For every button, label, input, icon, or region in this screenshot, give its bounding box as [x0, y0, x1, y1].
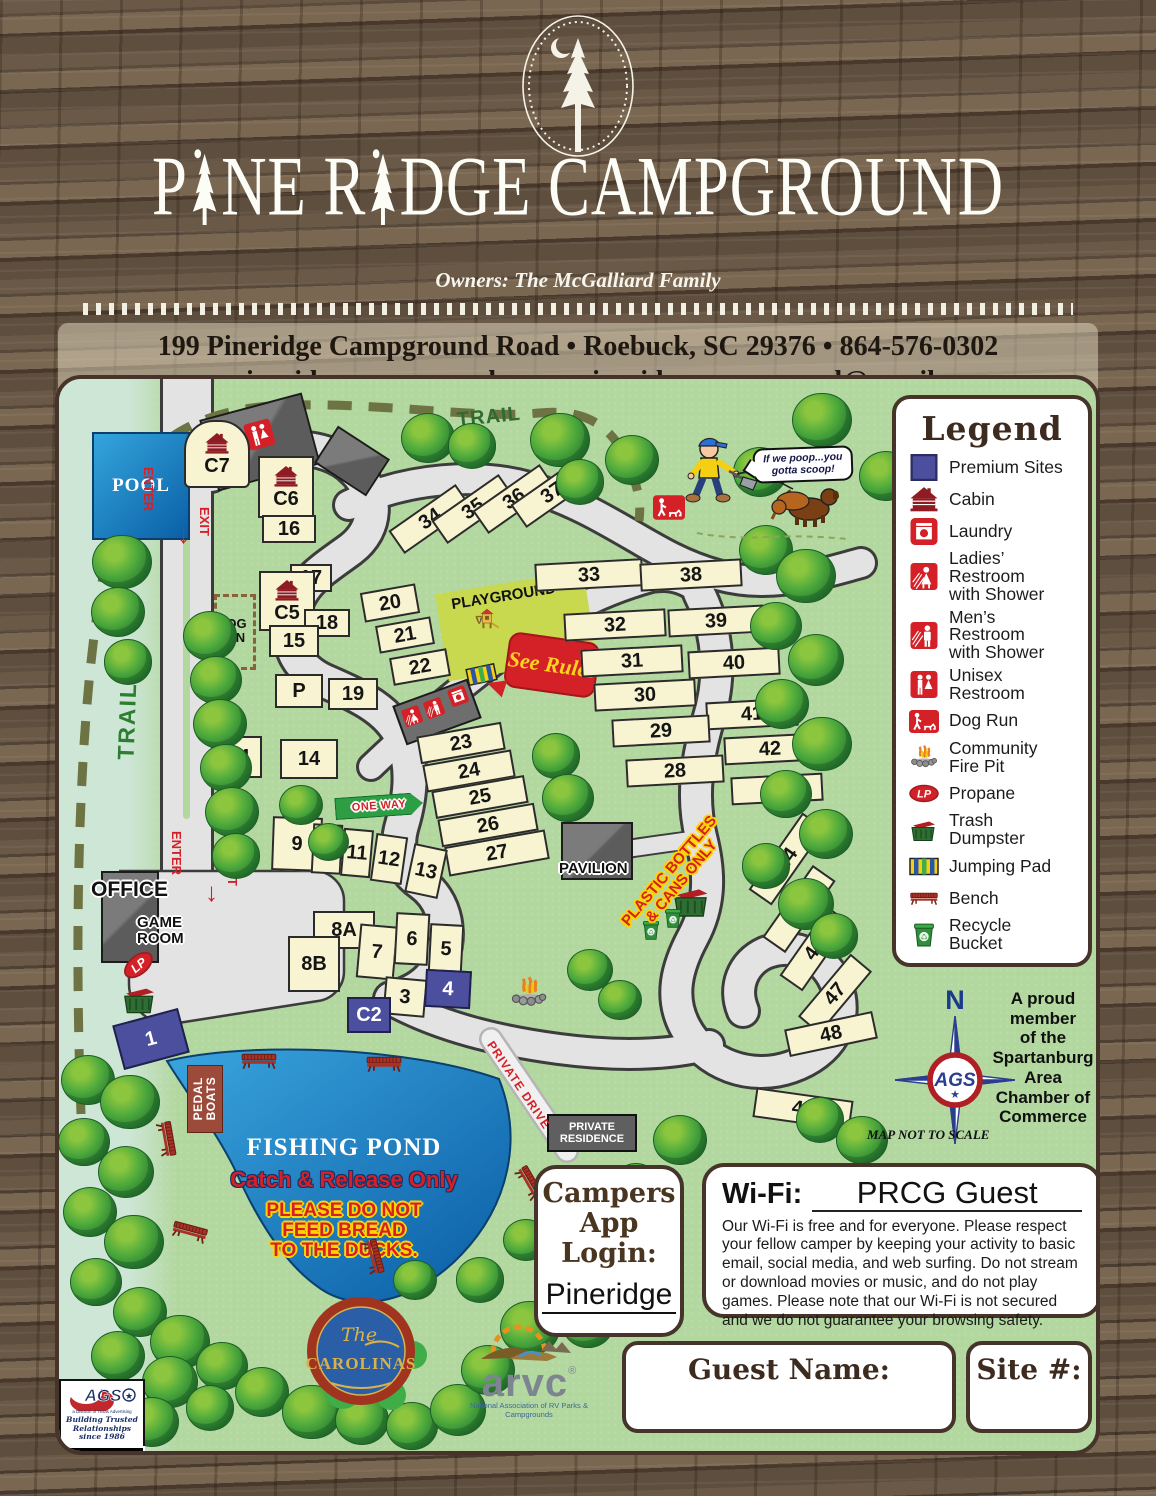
pedal-boats-sign: PEDAL BOATS: [187, 1065, 223, 1133]
ags-script-text: Building Trusted Relationships since 198…: [61, 1416, 143, 1442]
site-15[interactable]: 15: [269, 625, 319, 657]
legend: Legend Premium SitesCabinLaundryLadies’ …: [892, 395, 1092, 967]
community-fire-pit-icon: [509, 975, 549, 1016]
site-label: 32: [603, 614, 626, 635]
legend-item-label: Community Fire Pit: [949, 740, 1038, 776]
site-33[interactable]: 33: [534, 558, 643, 592]
legend-item-label: Cabin: [949, 491, 995, 509]
cabin-icon: [908, 486, 940, 513]
site-label: 18: [316, 613, 338, 633]
tree-icon: [776, 549, 835, 604]
map-not-to-scale-label: MAP NOT TO SCALE: [867, 1127, 1017, 1143]
legend-item-4: Men’s Restroom with Shower: [908, 609, 1076, 663]
tree-icon: [104, 1215, 163, 1270]
wifi-network-name: PRCG Guest: [812, 1177, 1082, 1212]
legend-item-label: Jumping Pad: [949, 858, 1051, 876]
legend-item-label: Trash Dumpster: [949, 812, 1025, 848]
site-label: 40: [722, 652, 745, 673]
wifi-policy-text: Our Wi-Fi is free and for everyone. Plea…: [722, 1218, 1082, 1331]
tree-icon: [92, 535, 151, 590]
ags-division-text: a Division of Texas Advertising: [61, 1409, 143, 1414]
propane-icon: LP: [908, 780, 940, 807]
carolinas-name: CAROLINAS: [305, 1354, 416, 1373]
site-38[interactable]: 38: [639, 558, 742, 591]
site-label: 12: [377, 848, 402, 871]
legend-item-label: Laundry: [949, 523, 1012, 541]
tree-icon: [212, 833, 261, 878]
tree-icon: [308, 823, 349, 861]
address-line-1: 199 Pineridge Campground Road • Roebuck,…: [58, 329, 1098, 364]
site-label: C6: [273, 489, 299, 509]
site-label: 25: [467, 785, 492, 809]
ags-logo-box: AGS ★ a Division of Texas Advertising Bu…: [59, 1379, 145, 1455]
site-label: 16: [278, 519, 300, 539]
tree-icon: [653, 1115, 707, 1165]
site-12[interactable]: 12: [370, 833, 408, 885]
tree-icon: [100, 1075, 159, 1130]
site-14[interactable]: 14: [280, 739, 338, 779]
svg-text:★: ★: [950, 1089, 960, 1101]
svg-text:AGS: AGS: [933, 1070, 976, 1091]
private-residence-label: PRIVATE RESIDENCE: [560, 1121, 624, 1145]
no-bread-label: PLEASE DO NOT FEED BREAD TO THE DUCKS.: [219, 1201, 469, 1260]
site-label: 30: [633, 684, 656, 705]
pine-tree-glyph-icon: [370, 148, 395, 225]
enter-arrow-top: ↓: [177, 521, 190, 548]
legend-item-label: Premium Sites: [949, 459, 1063, 477]
site-label: 8B: [301, 954, 327, 974]
tree-icon: [556, 459, 605, 504]
site-7[interactable]: 7: [356, 923, 399, 980]
fishing-pond-label: FISHING POND: [219, 1135, 469, 1161]
mens-restroom-icon: [908, 622, 940, 649]
site-label: 6: [406, 929, 418, 950]
legend-item-9: Trash Dumpster: [908, 812, 1076, 848]
tree-icon: [193, 699, 247, 749]
legend-item-label: Recycle Bucket: [949, 917, 1011, 953]
carolinas-logo: The CAROLINAS: [295, 1295, 427, 1413]
fire-pit-icon: [908, 744, 940, 771]
site-29[interactable]: 29: [611, 714, 710, 747]
site-8B[interactable]: 8B: [288, 936, 340, 992]
site-label: 24: [456, 759, 481, 783]
tree-icon: [742, 843, 791, 888]
site-19[interactable]: 19: [328, 678, 378, 710]
arvc-tagline: National Association of RV Parks & Campg…: [449, 1401, 609, 1419]
campers-app-password: Pineridge: [542, 1278, 677, 1314]
guest-name-field[interactable]: [626, 1386, 952, 1420]
site-label: C7: [204, 456, 230, 476]
wifi-box: Wi-Fi: PRCG Guest Our Wi-Fi is free and …: [702, 1163, 1100, 1318]
dumpster-icon: [908, 817, 940, 844]
site-label: 13: [413, 859, 439, 883]
site-40[interactable]: 40: [687, 647, 780, 680]
tree-icon: [448, 423, 497, 468]
arvc-reg: ®: [568, 1365, 576, 1377]
legend-item-8: LPPropane: [908, 780, 1076, 807]
tree-icon: [760, 770, 811, 818]
owners-line: Owners: The McGalliard Family: [0, 268, 1156, 293]
site-label: 5: [440, 939, 452, 960]
playground-icon: [474, 607, 500, 635]
tree-icon: [532, 733, 581, 778]
site-label: 33: [577, 564, 600, 585]
site-label: 15: [283, 631, 305, 651]
tree-icon: [235, 1367, 289, 1417]
svg-text:AGS: AGS: [84, 1386, 123, 1405]
site-label: 31: [620, 650, 643, 671]
tree-icon: [598, 980, 642, 1020]
arvc-name: arvc: [482, 1361, 568, 1405]
site-label: 38: [679, 564, 702, 585]
site-32[interactable]: 32: [563, 608, 666, 641]
site-16[interactable]: 16: [262, 515, 316, 543]
cabin-icon: [204, 432, 230, 455]
unisex-restroom-icon: [908, 671, 940, 698]
legend-item-label: Ladies’ Restroom with Shower: [949, 550, 1044, 604]
enter-label-top: ENTER: [141, 467, 155, 511]
site-28[interactable]: 28: [625, 754, 724, 787]
site-5[interactable]: 5: [428, 923, 465, 975]
legend-item-6: Dog Run: [908, 708, 1076, 735]
site-C7[interactable]: C7: [184, 420, 250, 488]
bench-icon: [240, 1044, 278, 1083]
svg-text:LP: LP: [917, 789, 932, 801]
tree-icon: [104, 639, 153, 684]
site-number-label: Site #:: [970, 1353, 1088, 1386]
legend-item-0: Premium Sites: [908, 454, 1076, 481]
tree-icon: [755, 679, 809, 729]
legend-item-label: Propane: [949, 785, 1015, 803]
legend-item-label: Unisex Restroom: [949, 667, 1025, 703]
tree-icon: [91, 1331, 145, 1381]
tree-icon: [183, 611, 237, 661]
site-30[interactable]: 30: [593, 678, 696, 711]
site-label: 48: [818, 1022, 844, 1046]
site-label: 23: [448, 731, 473, 755]
site-label: P: [292, 681, 305, 701]
site-label: 28: [663, 760, 686, 781]
tree-icon: [190, 656, 241, 704]
tree-icon: [279, 785, 323, 825]
pavilion-label: PAVILION: [559, 861, 628, 877]
premium-swatch: [908, 454, 940, 481]
dog-walker-cartoon: [677, 427, 857, 545]
site-4[interactable]: 4: [424, 969, 472, 1009]
wifi-label: Wi-Fi:: [722, 1178, 802, 1211]
site-label: 14: [298, 749, 320, 769]
tree-icon: [605, 435, 659, 485]
bench-icon: [141, 1117, 186, 1161]
ags-years-badge: 2019-2020: [59, 1446, 145, 1455]
site-label: 26: [475, 813, 500, 837]
tick-divider: [83, 303, 1073, 315]
campers-app-title: Campers App Login:: [538, 1179, 680, 1270]
legend-item-label: Men’s Restroom with Shower: [949, 609, 1044, 663]
laundry-icon: [908, 518, 940, 545]
legend-item-1: Cabin: [908, 486, 1076, 513]
jumping-pad-icon: [908, 853, 940, 880]
legend-item-2: Laundry: [908, 518, 1076, 545]
site-6[interactable]: 6: [394, 912, 431, 966]
legend-item-label: Dog Run: [949, 712, 1018, 730]
site-31[interactable]: 31: [580, 644, 683, 677]
campers-app-login-box: Campers App Login: Pineridge: [534, 1165, 684, 1337]
tree-icon: [456, 1257, 505, 1302]
bench-icon: [365, 1047, 403, 1086]
site-label: 42: [758, 738, 781, 759]
tree-icon: [91, 587, 145, 637]
site-P[interactable]: P: [275, 674, 323, 708]
legend-item-10: Jumping Pad: [908, 853, 1076, 880]
guest-name-box: Guest Name:: [622, 1341, 956, 1433]
site-label: 9: [291, 834, 303, 854]
site-label: 11: [346, 842, 369, 864]
site-label: C5: [274, 603, 300, 623]
private-residence-building: PRIVATE RESIDENCE: [547, 1114, 637, 1152]
tree-icon: [792, 717, 851, 772]
legend-title: Legend: [908, 409, 1076, 448]
site-label: 3: [399, 987, 412, 1008]
tree-icon: [810, 913, 859, 958]
site-number-box: Site #:: [966, 1341, 1092, 1433]
site-label: 27: [484, 841, 509, 865]
site-label: 19: [342, 684, 364, 704]
site-label: 1: [143, 1028, 159, 1050]
tree-icon: [200, 744, 251, 792]
legend-item-label: Bench: [949, 890, 999, 908]
site-label: C2: [356, 1005, 382, 1025]
legend-item-11: Bench: [908, 885, 1076, 912]
cabin-icon: [274, 579, 300, 602]
site-label: 29: [649, 720, 672, 741]
svg-text:♺: ♺: [921, 933, 928, 942]
office-label: OFFICE: [91, 879, 168, 901]
site-label: 20: [377, 591, 402, 615]
enter-label-bottom: ENTER: [169, 831, 183, 875]
speech-bubble: If we poop...you gotta scoop!: [752, 445, 853, 484]
trail-label-left: TRAIL: [115, 682, 142, 761]
exit-label-top: EXIT: [197, 507, 211, 536]
site-label: 39: [704, 610, 727, 631]
dog-run-icon: [908, 708, 940, 735]
site-label: 21: [392, 623, 417, 647]
campground-map: POOL PLAYGROUND DOG RUN OFFICE GAME ROOM…: [55, 375, 1100, 1455]
tree-icon: [186, 1385, 235, 1430]
bench-icon: [908, 885, 940, 912]
legend-item-12: ♺Recycle Bucket: [908, 917, 1076, 953]
catch-release-label: Catch & Release Only: [209, 1169, 479, 1192]
arvc-logo: arvc® National Association of RV Parks &…: [449, 1313, 609, 1409]
site-label: 7: [371, 942, 384, 963]
enter-arrow-bottom: ↓: [205, 879, 218, 906]
legend-item-7: Community Fire Pit: [908, 740, 1076, 776]
site-label: 4: [442, 979, 454, 1000]
recycle-icon: ♺: [908, 921, 940, 948]
tree-icon: [788, 634, 845, 686]
svg-text:♺: ♺: [670, 917, 675, 924]
svg-text:★: ★: [125, 1391, 133, 1401]
legend-item-3: Ladies’ Restroom with Shower: [908, 550, 1076, 604]
pine-tree-glyph-icon: [192, 148, 217, 225]
tree-icon: [205, 787, 259, 837]
chamber-member-text: A proud member of the Spartanburg Area C…: [987, 989, 1099, 1127]
header: P NE R DGE CAMPGROUND Owners: The McGall…: [0, 0, 1156, 407]
tree-icon: [401, 413, 455, 463]
tree-icon: [799, 809, 853, 859]
site-C6[interactable]: C6: [258, 456, 314, 518]
page-title: P NE R DGE CAMPGROUND: [12, 148, 1145, 225]
site-label: 22: [407, 655, 432, 679]
cabin-icon: [273, 465, 299, 488]
tree-icon: [70, 1258, 121, 1306]
ladies-restroom-icon: [908, 563, 940, 590]
site-number-field[interactable]: [970, 1386, 1088, 1420]
game-room-label: GAME ROOM: [137, 915, 184, 946]
guest-name-label: Guest Name:: [626, 1353, 952, 1386]
tree-icon: [542, 774, 593, 822]
legend-item-5: Unisex Restroom: [908, 667, 1076, 703]
site-C2[interactable]: C2: [347, 997, 391, 1033]
